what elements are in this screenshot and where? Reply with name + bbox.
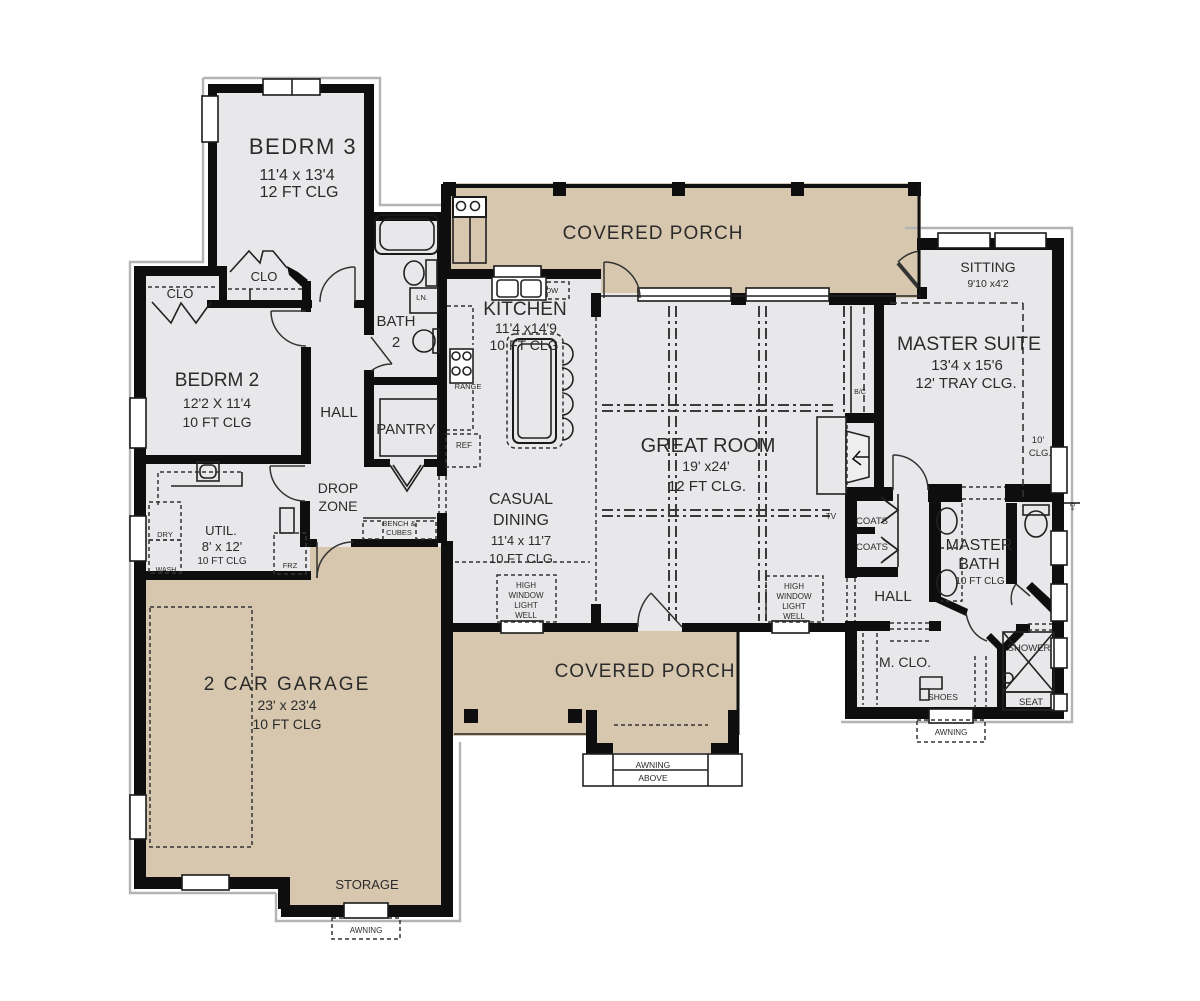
- svg-text:11'4 x 11'7: 11'4 x 11'7: [491, 533, 551, 548]
- svg-text:DRY: DRY: [157, 530, 173, 539]
- svg-text:DW: DW: [546, 286, 559, 295]
- svg-text:BATH: BATH: [377, 313, 416, 330]
- svg-text:COVERED PORCH: COVERED PORCH: [563, 223, 744, 244]
- svg-text:UTIL.: UTIL.: [205, 523, 237, 538]
- svg-text:TV: TV: [826, 512, 837, 521]
- svg-text:12 FT CLG: 12 FT CLG: [260, 184, 339, 201]
- svg-text:11'4 x14'9: 11'4 x14'9: [495, 320, 557, 336]
- svg-text:10 FT CLG: 10 FT CLG: [253, 716, 322, 732]
- svg-text:12' TRAY CLG.: 12' TRAY CLG.: [915, 375, 1016, 392]
- svg-text:MASTER: MASTER: [946, 537, 1013, 554]
- svg-text:CLG.: CLG.: [1029, 448, 1051, 459]
- svg-text:DROP: DROP: [318, 480, 358, 496]
- svg-text:10 FT CLG: 10 FT CLG: [955, 576, 1004, 587]
- svg-text:+6: +6: [1070, 503, 1077, 511]
- svg-text:CASUAL: CASUAL: [489, 491, 553, 508]
- svg-text:HALL: HALL: [320, 404, 358, 421]
- svg-text:STORAGE: STORAGE: [335, 877, 399, 892]
- svg-text:ZONE: ZONE: [319, 498, 358, 514]
- svg-text:MASTER SUITE: MASTER SUITE: [897, 333, 1041, 355]
- svg-text:RANGE: RANGE: [455, 382, 482, 391]
- svg-text:FRZ: FRZ: [283, 561, 298, 570]
- svg-text:CUBES: CUBES: [386, 528, 412, 537]
- svg-text:AWNING: AWNING: [935, 728, 968, 737]
- svg-text:9'10 x4'2: 9'10 x4'2: [967, 278, 1009, 290]
- svg-text:10 FT CLG: 10 FT CLG: [197, 556, 246, 567]
- svg-text:10': 10': [1032, 435, 1045, 446]
- svg-text:REF: REF: [456, 441, 472, 450]
- svg-text:WASH: WASH: [156, 567, 177, 574]
- svg-text:HALL: HALL: [874, 588, 912, 605]
- svg-text:19' x24': 19' x24': [682, 458, 729, 474]
- svg-text:CLO: CLO: [251, 269, 278, 284]
- svg-text:COVERED PORCH: COVERED PORCH: [555, 661, 736, 682]
- svg-text:BEDRM 3: BEDRM 3: [249, 134, 357, 159]
- svg-text:CLO: CLO: [167, 286, 194, 301]
- svg-text:BATH: BATH: [958, 556, 999, 573]
- svg-text:HIGH: HIGH: [784, 582, 804, 591]
- svg-text:WINDOW: WINDOW: [776, 592, 812, 601]
- svg-text:SEAT: SEAT: [1019, 697, 1043, 708]
- svg-text:GREAT ROOM: GREAT ROOM: [641, 435, 776, 457]
- svg-text:DINING: DINING: [493, 512, 549, 529]
- svg-text:AWNING: AWNING: [350, 926, 383, 935]
- svg-text:SHOWER: SHOWER: [1008, 643, 1051, 654]
- svg-text:COATS: COATS: [856, 542, 888, 553]
- svg-text:PANTRY: PANTRY: [376, 421, 435, 438]
- svg-text:SITTING: SITTING: [960, 259, 1015, 275]
- svg-text:BEDRM 2: BEDRM 2: [175, 370, 259, 391]
- svg-text:BENCH &: BENCH &: [382, 519, 415, 528]
- svg-text:13'4 x 15'6: 13'4 x 15'6: [931, 357, 1003, 374]
- svg-text:23' x 23'4: 23' x 23'4: [257, 697, 316, 713]
- svg-text:WELL: WELL: [783, 612, 805, 621]
- svg-text:10 FT CLG: 10 FT CLG: [490, 337, 559, 353]
- svg-text:WELL: WELL: [515, 611, 537, 620]
- svg-text:LN.: LN.: [416, 293, 428, 302]
- svg-text:KITCHEN: KITCHEN: [483, 299, 566, 320]
- svg-text:12 FT CLG.: 12 FT CLG.: [668, 478, 746, 495]
- svg-text:COATS: COATS: [856, 516, 888, 527]
- svg-text:2 CAR GARAGE: 2 CAR GARAGE: [204, 674, 371, 695]
- svg-text:AWNING: AWNING: [636, 760, 671, 770]
- svg-text:11'4 x 13'4: 11'4 x 13'4: [259, 167, 334, 184]
- svg-text:10 FT CLG: 10 FT CLG: [183, 414, 252, 430]
- svg-text:12'2 X 11'4: 12'2 X 11'4: [183, 395, 251, 411]
- svg-text:LIGHT: LIGHT: [782, 602, 806, 611]
- svg-text:M. CLO.: M. CLO.: [879, 654, 931, 670]
- svg-text:SHOES: SHOES: [928, 692, 958, 702]
- svg-text:10 FT CLG: 10 FT CLG: [489, 551, 553, 566]
- svg-text:LIGHT: LIGHT: [514, 601, 538, 610]
- svg-text:WINDOW: WINDOW: [508, 591, 544, 600]
- svg-text:ABOVE: ABOVE: [638, 773, 668, 783]
- svg-text:2: 2: [392, 334, 400, 351]
- svg-text:HIGH: HIGH: [516, 581, 536, 590]
- svg-text:B/C: B/C: [854, 389, 866, 396]
- svg-text:8' x 12': 8' x 12': [202, 539, 242, 554]
